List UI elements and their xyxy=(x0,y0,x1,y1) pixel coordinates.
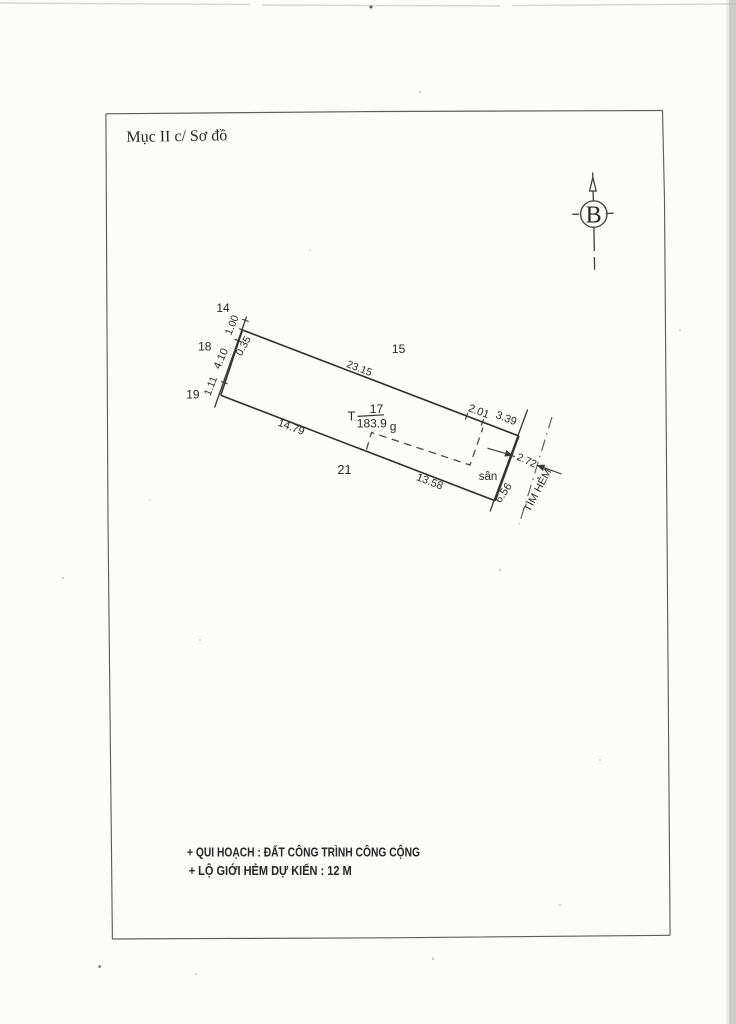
svg-text:Mục II c/ Sơ đồ: Mục II c/ Sơ đồ xyxy=(126,127,227,146)
svg-text:19: 19 xyxy=(186,388,200,402)
svg-text:18: 18 xyxy=(198,340,212,354)
svg-text:T: T xyxy=(348,409,356,424)
svg-text:g: g xyxy=(390,420,397,434)
svg-text:183.9: 183.9 xyxy=(357,417,387,431)
svg-text:21: 21 xyxy=(338,463,352,477)
svg-text:17: 17 xyxy=(370,402,384,416)
svg-text:+ LỘ GIỚI HẺM DỰ KIẾN : 12 M: + LỘ GIỚI HẺM DỰ KIẾN : 12 M xyxy=(189,863,352,878)
svg-text:14: 14 xyxy=(216,301,230,315)
svg-text:sân: sân xyxy=(479,471,498,483)
svg-text:15: 15 xyxy=(392,342,406,356)
svg-text:+ QUI HOẠCH : ĐẤT CÔNG TRÌNH C: + QUI HOẠCH : ĐẤT CÔNG TRÌNH CÔNG CỘNG xyxy=(187,845,420,860)
svg-text:B: B xyxy=(586,203,602,229)
